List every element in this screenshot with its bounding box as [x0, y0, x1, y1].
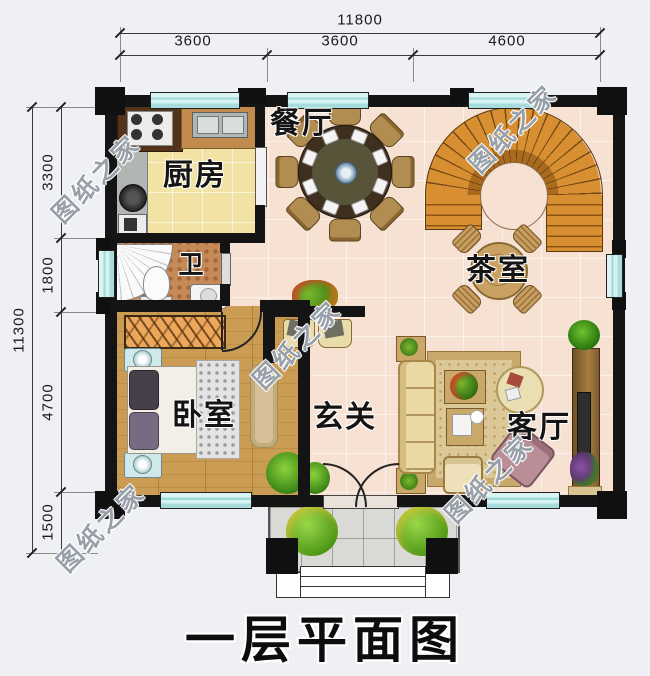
page-title: 一层平面图 [110, 600, 540, 672]
dim-line [61, 107, 62, 553]
porch-step-side [424, 572, 450, 598]
kitchen-bath-wall [105, 233, 265, 243]
dim-left-seg3: 4700 [40, 383, 57, 420]
centerpiece-icon [335, 162, 357, 184]
dim-top-total: 11800 [337, 12, 383, 29]
tv-icon [577, 392, 591, 456]
flower-plant-icon [450, 372, 478, 400]
plant-icon [400, 338, 418, 356]
plant-icon [568, 320, 600, 350]
dim-left-seg2: 1800 [40, 256, 57, 293]
window-tea [606, 254, 623, 298]
kitchen-door-opening [255, 147, 267, 207]
pillow-icon [129, 370, 159, 410]
kitchen-wall [255, 107, 265, 147]
corner-pillar [597, 87, 627, 115]
sofa-icon [398, 360, 436, 474]
pillow-icon [129, 412, 159, 450]
corner-pillar [95, 87, 125, 115]
plant-icon [400, 472, 418, 490]
dim-left-seg1: 3300 [40, 153, 57, 190]
room-label-dining: 餐厅 [270, 98, 334, 142]
bedroom-wall-top [105, 300, 222, 312]
wall-pillar [238, 88, 266, 104]
window-bath [98, 250, 115, 298]
dim-top-seg1: 3600 [174, 33, 211, 50]
room-label-bedroom: 卧室 [172, 390, 236, 434]
room-label-tea: 茶室 [466, 245, 530, 289]
window-bedroom [160, 492, 252, 509]
dim-line [32, 107, 33, 553]
bedroom-door-leaf [221, 312, 223, 350]
window-kitchen [150, 92, 240, 109]
porch-pillar-right [426, 538, 458, 574]
dim-top-seg3: 4600 [488, 33, 525, 50]
porch-pillar-left [266, 538, 298, 574]
lamp-icon [133, 455, 152, 474]
room-label-kitchen: 厨房 [163, 150, 227, 194]
porch-step-side [276, 572, 302, 598]
bath-sliding-door [221, 253, 231, 286]
room-label-hall: 玄关 [313, 392, 377, 436]
bath-wall [220, 243, 230, 253]
wok-icon [119, 184, 147, 212]
flower-plant-icon [570, 452, 598, 486]
toilet-icon [143, 266, 170, 301]
floor-plan-canvas: 11800 3600 3600 4600 11300 3300 1800 470… [0, 0, 650, 676]
dim-line [120, 55, 600, 56]
porch-step [300, 586, 426, 598]
dim-left-total: 11300 [11, 307, 28, 353]
dim-left-seg4: 1500 [40, 503, 57, 540]
room-label-bath: 卫 [178, 245, 205, 281]
corner-pillar [597, 491, 627, 519]
window-living [486, 492, 560, 509]
wardrobe-icon [124, 315, 226, 349]
dim-top-seg2: 3600 [321, 33, 358, 50]
